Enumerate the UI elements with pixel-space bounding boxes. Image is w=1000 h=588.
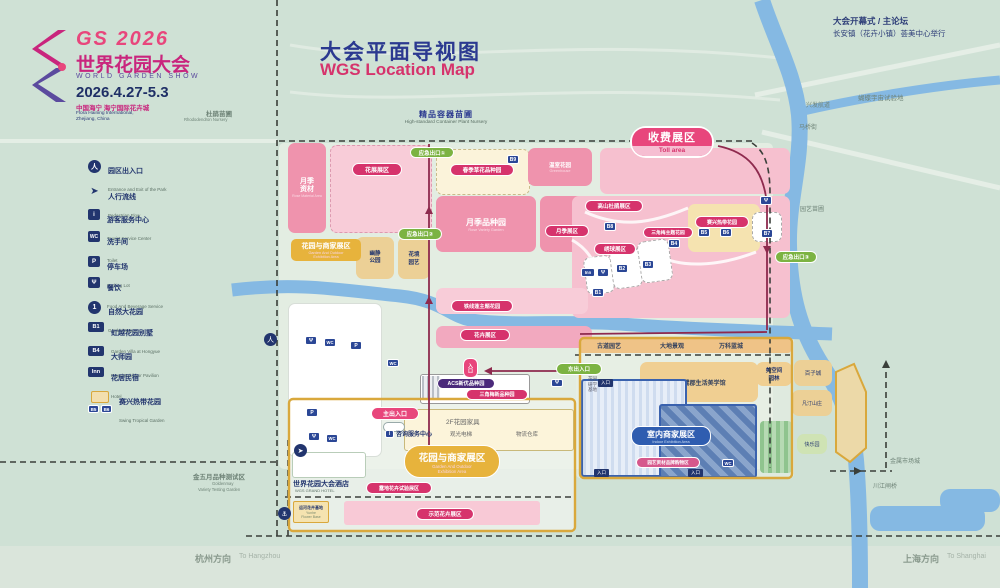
legend-tropical-zh: 赛兴热带花园	[119, 399, 161, 406]
badge-p-2: P	[306, 408, 318, 417]
gb-zone-label-small: 花园与商家展区 Garden And Outdoor Exhibition Ar…	[291, 239, 361, 261]
b5-legend-icon: B5	[88, 405, 99, 413]
badge-b8: B8	[604, 222, 616, 231]
badge-food-4: Ψ	[308, 432, 320, 441]
pill-demo-area: 示范花卉展区	[416, 508, 474, 520]
pill-trial-area: 露地花卉试验展区	[366, 482, 432, 494]
study-line1: 花园	[588, 376, 597, 382]
parking-icon: P	[88, 256, 100, 267]
gb-zone-small-zh: 花园与商家展区	[294, 241, 358, 251]
nursery2-label: 园艺苗圃	[800, 204, 824, 213]
badge-food-3: Ψ	[305, 336, 317, 345]
page-title-en: WGS Location Map	[320, 60, 475, 80]
pill-bougainvillea-theme: 三角梅主题花园	[643, 227, 693, 238]
pill-rhododendron: 高山杜鹃展区	[585, 200, 643, 212]
legend-master-zh: 大师园	[111, 354, 132, 361]
direction-shanghai-en: To Shanghai	[947, 553, 986, 560]
note-line1: 大会开幕式 / 主论坛	[833, 15, 908, 27]
goldenmay-zh: 金五月品种测试区	[193, 471, 245, 481]
b6-legend-icon: B6	[101, 405, 112, 413]
pill-hydrangea: 绣球展区	[594, 243, 636, 255]
waterway-label: 兴发航道	[806, 100, 830, 109]
food-icon: Ψ	[88, 277, 100, 288]
gb-zone-small-en2: Exhibition Area	[294, 255, 358, 259]
pill-tropical: 赛兴热带花园	[695, 216, 749, 228]
nursery-label: 精品容器苗圃 High-standard Container Plant Nur…	[366, 109, 526, 125]
pill-exit-3: 应急出口③	[775, 251, 817, 263]
rhodo-nursery-en: Rhododendron Nursery	[184, 117, 228, 122]
nursery-en: High-standard Container Plant Nursery	[366, 120, 526, 125]
logo-gs: GS 2026	[76, 28, 169, 51]
pill-main-gate: 主出入口	[371, 407, 419, 420]
info-center-row: i 咨询服务中心	[385, 429, 432, 438]
badge-wc-2: WC	[326, 434, 338, 443]
pill-spring-flowers: 春季草花品种园	[450, 164, 514, 176]
badge-b4: B4	[668, 239, 680, 248]
number-one-icon: 1	[88, 301, 101, 314]
b4-legend-icon: B4	[88, 346, 104, 356]
legend-food-zh: 餐饮	[107, 285, 121, 292]
legend-garden-space-zh: 自然大花园	[108, 309, 143, 316]
bridge-label: 川江闸桥	[873, 481, 897, 490]
entry-tag-1: 入口	[594, 469, 609, 477]
badge-b7: B7	[761, 229, 773, 238]
legend-item-tropical: B5 B6 赛兴热带花园 Swing Tropical Garden	[88, 391, 165, 427]
legend-entrance-zh: 园区出入口	[108, 168, 143, 175]
direction-shanghai-zh: 上海方向	[903, 552, 939, 565]
toll-area-badge: 收费展区 Toll area	[630, 126, 714, 158]
info-icon: i	[385, 430, 394, 438]
legend-info-zh: 游客服务中心	[107, 217, 149, 224]
logo-dates: 2026.4.27-5.3	[76, 84, 169, 101]
route-arrow-4	[484, 367, 492, 375]
gb-zone-big-en2: Exhibition Area	[438, 469, 467, 474]
market-warehouse-label: 物流仓库	[516, 430, 538, 438]
badge-food-1: Ψ	[597, 268, 609, 277]
pill-flower-show: 花展展区	[352, 163, 402, 176]
entrance-icon: 人	[88, 160, 101, 173]
badge-food-5: Ψ	[551, 379, 563, 387]
gate-person-icon: 人	[264, 333, 277, 346]
pill-exit-1: 应急出口①	[410, 147, 454, 158]
badge-b6: B6	[720, 228, 732, 237]
entry-tag-3: 入口	[598, 379, 613, 387]
market-elevator-label: 观光电梯	[450, 430, 472, 438]
wgs-logo-icon	[28, 28, 74, 106]
logo-venue-en1: Flora Haining International,	[76, 111, 134, 116]
entry-tag-2: 入口	[688, 469, 703, 477]
indoor-zh: 室内商家展区	[647, 429, 695, 440]
dock-icon: ⚓	[278, 507, 291, 520]
badge-b3: B3	[642, 260, 654, 269]
road-arrow-east	[854, 467, 862, 475]
legend-flow-zh: 人行流线	[108, 194, 136, 201]
goldenmay-en2: Variety Testing Garden	[198, 487, 240, 492]
yellow-swatch	[91, 391, 109, 403]
badge-b2: B2	[616, 264, 628, 273]
legend-hotel-zh: 花居民宿	[111, 375, 139, 382]
road-arrow-north	[882, 360, 890, 368]
legend-toilet-zh: 洗手间	[107, 239, 128, 246]
pill-clematis: 铁线莲主题花园	[451, 300, 513, 312]
market-f2-label: 2F花园家具	[446, 416, 480, 426]
goldenmay-en1: Goldenmay	[212, 481, 233, 486]
legend-villa-zh: 虹越花园别墅	[111, 330, 153, 337]
flow-arrow-icon: ➤	[294, 444, 307, 457]
pill-acs: ACS新优品种园	[437, 378, 495, 389]
wgs-map: 月季资材 Rose Material Area 温室花园 Greenhouse …	[0, 0, 1000, 588]
pill-indoor: 室内商家展区 Indoor Exhibition Area	[631, 426, 711, 446]
info-legend-icon: i	[88, 209, 100, 220]
pill-bougainvillea-new: 三角梅新品种园	[466, 389, 528, 400]
route-arrow-2	[425, 296, 433, 304]
toll-area-zh: 收费展区	[632, 128, 712, 146]
badge-food-2: Ψ	[760, 196, 772, 205]
flow-icon: ➤	[88, 186, 101, 197]
toll-area-en: Toll area	[632, 146, 712, 156]
sponsor-1: 古道园艺	[597, 341, 621, 350]
gb-zone-label-big: 花园与商家展区 Garden And Outdoor Exhibition Ar…	[404, 445, 500, 478]
indoor-en: Indoor Exhibition Area	[652, 440, 689, 444]
badge-b9: B9	[507, 155, 519, 164]
b1-legend-icon: B1	[88, 322, 104, 332]
dashed-roads	[0, 0, 1000, 537]
badge-p-1: P	[350, 341, 362, 350]
maqiao-label: 马桥街	[799, 122, 817, 131]
study-base-label: 花园 研学 基地	[588, 376, 597, 393]
pill-east-gate: 东出入口	[556, 363, 602, 375]
pill-mini-gate: 入口	[463, 358, 478, 378]
legend-tropical-en: Swing Tropical Garden	[119, 418, 165, 423]
yellow-boundaries	[289, 338, 792, 531]
badge-wc-1: WC	[324, 338, 336, 347]
study-line3: 基地	[588, 387, 597, 393]
hotel-label-en: WGS GRAND HOTEL	[295, 488, 335, 493]
pill-rose-area: 月季展区	[545, 225, 589, 237]
sponsor-2: 大地景观	[660, 341, 684, 350]
logo-venue-en2: Zhejiang, China	[76, 117, 110, 122]
route-arrow-1	[425, 206, 433, 214]
badge-wc-3: WC	[387, 359, 399, 367]
nursery-zh: 精品容器苗圃	[366, 109, 526, 120]
direction-hangzhou-zh: 杭州方向	[195, 552, 231, 565]
logo-en: WORLD GARDEN SHOW	[76, 73, 200, 80]
metal-label: 金属市场城	[890, 456, 920, 465]
gb-zone-big-zh: 花园与商家展区	[419, 450, 486, 464]
pill-shopping: 园艺资材品牌购物区	[636, 457, 700, 468]
butterfly-label: 蝴蝶宇宙试验地	[858, 92, 904, 102]
pill-flower-strip: 花卉展区	[460, 329, 510, 341]
badge-b1: B1	[592, 288, 604, 297]
sponsor-3: 万科蓝城	[719, 341, 743, 350]
badge-wc-4: WC	[722, 459, 734, 467]
direction-hangzhou-en: To Hangzhou	[239, 553, 280, 560]
note-line2: 长安镇（花卉小镇）荟美中心举行	[833, 28, 946, 39]
badge-inn: Inn	[581, 268, 595, 277]
info-center-label: 咨询服务中心	[396, 429, 432, 438]
badge-b5: B5	[698, 228, 710, 237]
pill-exit-2: 应急出口②	[398, 228, 442, 240]
legend-parking-zh: 停车场	[107, 264, 128, 271]
inn-legend-icon: Inn	[88, 367, 104, 377]
wc-icon: WC	[88, 231, 100, 242]
